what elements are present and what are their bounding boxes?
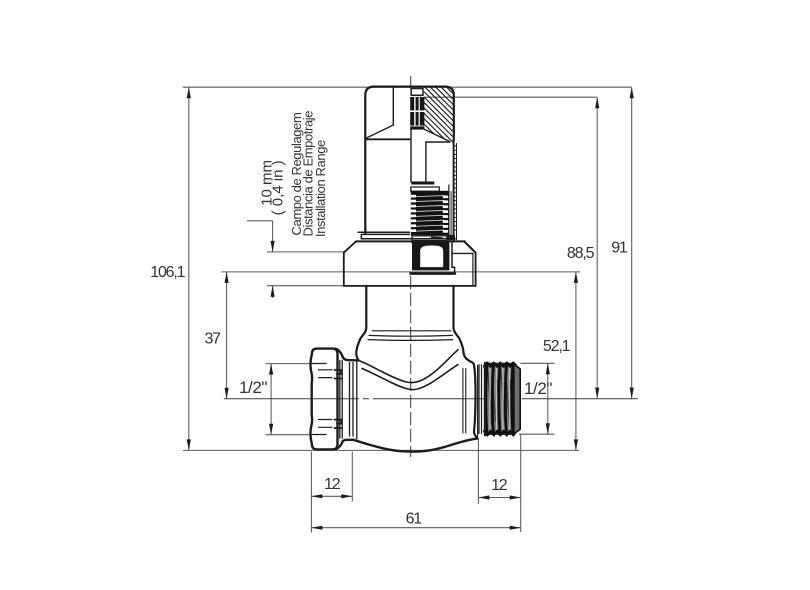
svg-text:( 0,4 in ): ( 0,4 in ): [270, 160, 287, 215]
svg-text:1/2": 1/2": [524, 379, 552, 398]
svg-text:91: 91: [611, 239, 628, 256]
svg-text:37: 37: [204, 331, 221, 348]
svg-text:Installation Range: Installation Range: [313, 140, 328, 237]
svg-text:12: 12: [324, 476, 341, 493]
svg-text:1/2": 1/2": [239, 378, 267, 397]
svg-text:106,1: 106,1: [150, 264, 185, 281]
svg-text:12: 12: [491, 477, 508, 494]
svg-text:88,5: 88,5: [567, 245, 595, 262]
svg-text:52,1: 52,1: [543, 338, 571, 355]
svg-text:61: 61: [406, 511, 423, 528]
